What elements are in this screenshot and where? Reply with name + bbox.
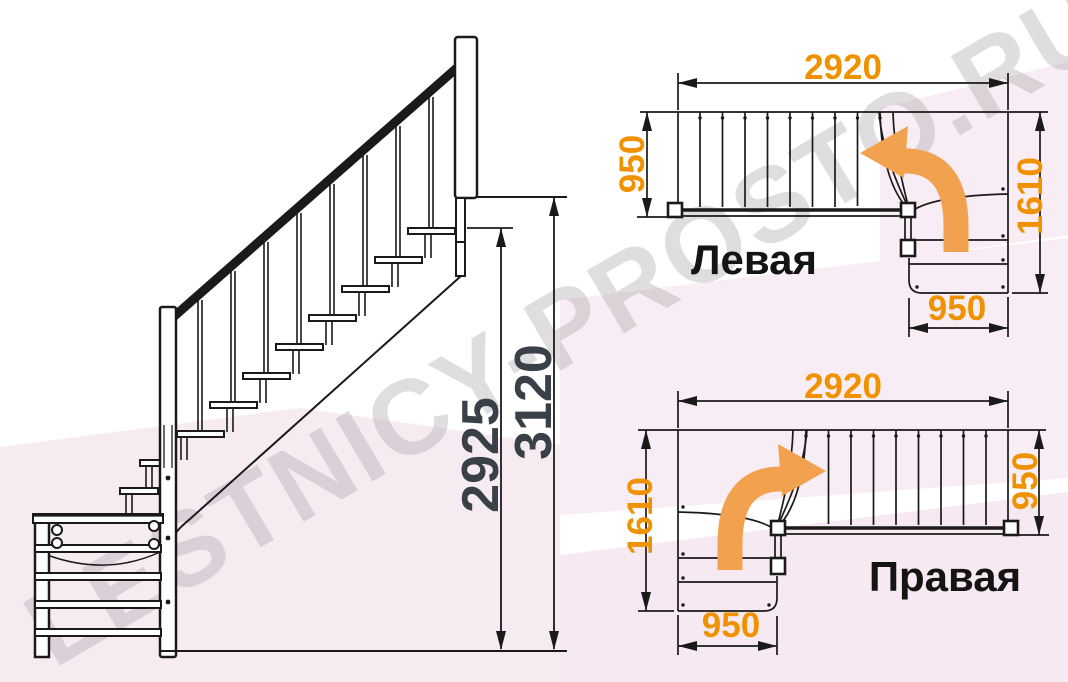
plan-view-left — [637, 73, 1048, 337]
staircase-diagram: 2925 3120 2920 950 1610 950 Левая 2920 1… — [0, 0, 1068, 682]
middle-newel-post — [160, 307, 176, 657]
dim-text-left-plan-turn-width: 950 — [928, 289, 986, 328]
staircase-drawing-page: LESTNICY-PROSTO.RU — [0, 0, 1068, 682]
dim-text-right-plan-turn-width: 950 — [702, 606, 760, 645]
dim-text-left-plan-turn-depth: 1610 — [1011, 157, 1050, 235]
dim-text-left-plan-flight-width: 950 — [613, 135, 652, 193]
winder-rail — [35, 573, 161, 580]
handrail — [170, 66, 459, 320]
plan-label-right: Правая — [869, 553, 1021, 600]
dim-text-right-plan-turn-depth: 1610 — [621, 477, 660, 555]
dim-text-2925: 2925 — [452, 397, 510, 513]
dim-text-right-plan-flight-width: 950 — [1006, 452, 1045, 510]
top-newel-post — [455, 37, 477, 198]
dim-text-3120: 3120 — [505, 344, 563, 460]
dim-text-right-plan-length: 2920 — [804, 367, 882, 406]
plan-label-left: Левая — [691, 236, 817, 283]
winder-rail — [35, 601, 161, 608]
lower-winder-box — [33, 514, 163, 657]
upper-support-post — [456, 198, 465, 276]
plan-view-right — [638, 391, 1049, 655]
winder-rail — [35, 629, 161, 636]
dim-text-left-plan-length: 2920 — [804, 48, 882, 87]
winder-tread-arc — [50, 552, 160, 565]
staircase-side-view — [33, 37, 567, 657]
